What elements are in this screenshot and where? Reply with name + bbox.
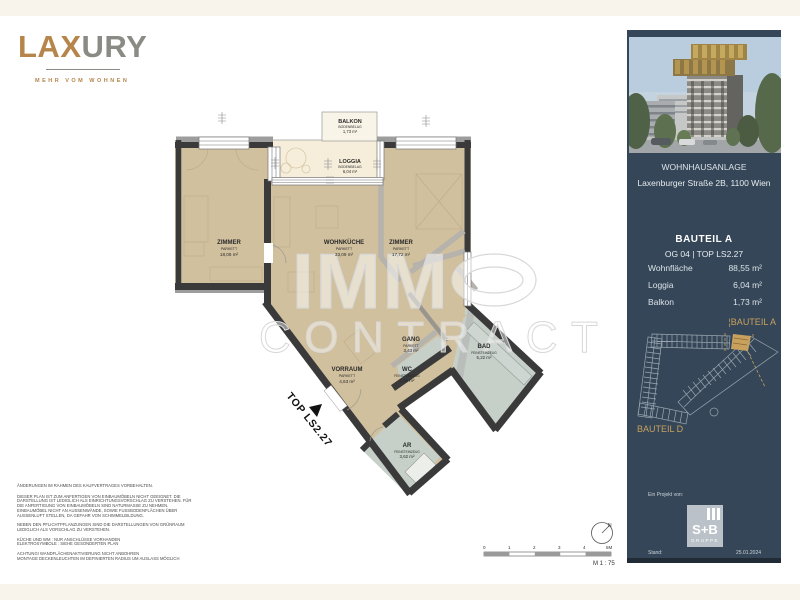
svg-text:33,09 m²: 33,09 m² (335, 252, 354, 257)
svg-text:4: 4 (583, 545, 586, 550)
svg-text:ZIMMER: ZIMMER (389, 240, 413, 246)
svg-text:1,73 m²: 1,73 m² (343, 129, 358, 134)
svg-text:3,43 m²: 3,43 m² (404, 348, 419, 353)
svg-text:WC: WC (402, 367, 413, 373)
svg-text:M 1 : 75: M 1 : 75 (593, 561, 615, 567)
svg-text:BAD: BAD (478, 344, 492, 350)
svg-text:AR: AR (403, 443, 412, 449)
svg-text:6,04 m²: 6,04 m² (343, 169, 358, 174)
svg-text:TOP LS2.27: TOP LS2.27 (284, 390, 335, 449)
svg-text:3,62 m²: 3,62 m² (400, 454, 415, 459)
svg-text:IMM: IMM (292, 237, 450, 325)
svg-text:17,72 m²: 17,72 m² (392, 252, 411, 257)
svg-text:5M: 5M (606, 545, 613, 550)
svg-text:VORRAUM: VORRAUM (332, 367, 363, 373)
svg-text:PARKETT: PARKETT (221, 247, 238, 251)
svg-text:4,63 m²: 4,63 m² (339, 379, 355, 384)
svg-text:1,90 m²: 1,90 m² (400, 378, 415, 383)
svg-text:PARKETT: PARKETT (339, 374, 356, 378)
svg-text:PARKETT: PARKETT (393, 247, 410, 251)
svg-text:CONTRACT: CONTRACT (259, 313, 611, 362)
svg-text:GANG: GANG (402, 337, 420, 343)
svg-text:ZIMMER: ZIMMER (217, 240, 241, 246)
svg-text:1: 1 (508, 545, 511, 550)
svg-text:18,06 m²: 18,06 m² (220, 252, 239, 257)
svg-text:WOHNKÜCHE: WOHNKÜCHE (324, 239, 364, 246)
svg-text:2: 2 (533, 545, 536, 550)
svg-text:5,22 m²: 5,22 m² (477, 355, 492, 360)
svg-text:3: 3 (558, 545, 561, 550)
svg-text:PARKETT: PARKETT (336, 247, 353, 251)
svg-text:N: N (608, 523, 612, 529)
svg-text:0: 0 (483, 545, 486, 550)
